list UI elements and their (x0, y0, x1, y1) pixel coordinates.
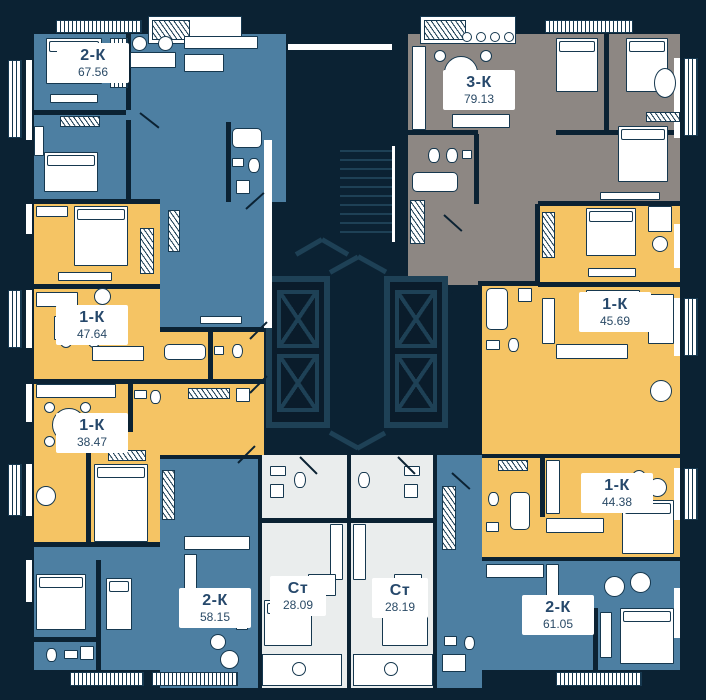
toilet (150, 390, 161, 404)
chair (80, 402, 91, 413)
bed (556, 38, 598, 92)
toilet (358, 472, 370, 488)
apartment-label-3k-7913[interactable]: 3-К 79.13 (443, 70, 515, 110)
stool (476, 32, 486, 42)
kitchen-counter (184, 36, 258, 49)
apartment-type: 2-К (202, 592, 228, 610)
wall (208, 330, 213, 382)
dresser (588, 268, 636, 277)
elevator-cab-icon (395, 354, 437, 412)
wall (535, 204, 540, 285)
stool (504, 32, 514, 42)
apartment-type: 2-К (80, 47, 106, 65)
apartment-label-2k-6105[interactable]: 2-К 61.05 (522, 595, 594, 635)
wall (226, 122, 231, 202)
lobby-wall (329, 255, 359, 275)
shaft-wall (264, 140, 272, 328)
toilet (248, 158, 260, 173)
wall (34, 110, 126, 115)
apartment-area: 79.13 (464, 92, 494, 106)
stair-tread (340, 150, 392, 152)
window (26, 560, 32, 602)
stool (490, 32, 500, 42)
dining-table (130, 52, 176, 68)
lobby-wall (356, 431, 386, 451)
chair (132, 36, 147, 51)
window (26, 464, 32, 516)
apartment-label-2k-5815[interactable]: 2-К 58.15 (179, 588, 251, 628)
sink (134, 390, 147, 399)
chair (220, 650, 239, 669)
desk (34, 126, 44, 156)
bathtub (486, 288, 508, 330)
balcony (684, 298, 698, 356)
kitchen-counter (353, 524, 366, 580)
wall (351, 518, 433, 523)
wall (482, 557, 680, 561)
wall (408, 130, 478, 135)
wall (86, 450, 91, 545)
window (674, 224, 680, 268)
kitchen-island (184, 54, 224, 72)
stair-tread (340, 213, 392, 215)
apartment-area: 28.09 (283, 598, 313, 612)
apartment-area: 67.56 (78, 65, 108, 79)
wall (482, 454, 680, 458)
balcony (545, 20, 633, 33)
wall (34, 284, 160, 289)
window (674, 588, 680, 638)
bathtub (232, 128, 262, 148)
wall (34, 199, 160, 204)
sofa (648, 294, 674, 344)
apartment-3k-7913-zone[interactable] (408, 204, 538, 285)
apartment-type: 1-К (604, 477, 630, 495)
apartment-type: Ст (288, 580, 308, 598)
apartment-area: 58.15 (200, 610, 230, 624)
apartment-label-2k-6756[interactable]: 2-К 67.56 (57, 43, 129, 83)
toilet (488, 492, 499, 506)
wardrobe (140, 228, 154, 274)
window (26, 204, 32, 234)
apartment-type: 2-К (545, 599, 571, 617)
bed (586, 208, 636, 256)
washing-machine (518, 288, 532, 302)
stairwell-window (288, 44, 392, 50)
wardrobe (60, 116, 100, 127)
chair (434, 50, 446, 62)
sink (486, 340, 500, 350)
window (26, 60, 32, 140)
toilet (46, 648, 57, 662)
apartment-label-1k-4438[interactable]: 1-К 44.38 (581, 473, 653, 513)
stair-tread (340, 204, 392, 206)
apartment-area: 45.69 (600, 314, 630, 328)
stair-door-wall (321, 237, 349, 256)
wall (128, 382, 133, 432)
chair (158, 36, 173, 51)
apartment-area: 28.19 (385, 600, 415, 614)
armchair (630, 572, 651, 593)
chair (210, 634, 226, 650)
wardrobe (442, 486, 456, 550)
apartment-label-st-2809[interactable]: Ст 28.09 (270, 576, 326, 616)
bathtub (510, 492, 530, 530)
bed (620, 608, 674, 664)
stair-tread (340, 231, 392, 233)
kitchen-counter (486, 564, 544, 578)
stair-tread (340, 177, 392, 179)
toilet (446, 148, 458, 163)
balcony (8, 60, 22, 138)
elevator-cab-icon (277, 354, 319, 412)
wall (34, 542, 160, 547)
sink (64, 650, 78, 659)
bed (44, 152, 98, 192)
bed (106, 578, 132, 630)
dresser (50, 94, 98, 103)
shower (80, 646, 94, 660)
bed (618, 126, 668, 182)
washing-machine (404, 484, 418, 498)
apartment-label-1k-3847[interactable]: 1-К 38.47 (56, 413, 128, 453)
toilet (428, 148, 440, 163)
stool (462, 32, 472, 42)
sink (270, 466, 286, 476)
stair-rail (392, 146, 395, 242)
wall (262, 518, 347, 523)
apartment-area: 61.05 (543, 617, 573, 631)
washing-machine (236, 180, 250, 194)
stair-tread (340, 195, 392, 197)
apartment-area: 47.64 (77, 327, 107, 341)
tv-stand (600, 192, 660, 200)
shower (442, 654, 466, 672)
apartment-area: 38.47 (77, 435, 107, 449)
wardrobe (542, 212, 555, 258)
balcony-table (384, 662, 398, 676)
chair (94, 288, 111, 305)
chair (44, 402, 55, 413)
apartment-type: 3-К (466, 74, 492, 92)
stair-tread (340, 168, 392, 170)
sink (444, 636, 457, 646)
bed (94, 464, 148, 542)
kitchen-counter (184, 536, 250, 550)
wardrobe (162, 470, 175, 520)
wall (96, 560, 101, 670)
bathtub (654, 68, 676, 98)
kitchen-counter (92, 346, 144, 361)
window (674, 58, 680, 138)
balcony (8, 464, 22, 516)
kitchen-counter (412, 46, 426, 130)
bathtub (164, 344, 206, 360)
balcony (152, 672, 238, 686)
toilet (294, 472, 306, 488)
window (26, 290, 32, 348)
door (451, 292, 470, 310)
floor-plan: 2-К 67.56 3-К 79.13 1-К 47.64 1-К 45.69 … (0, 0, 706, 700)
apartment-type: 1-К (79, 417, 105, 435)
wall (126, 120, 131, 202)
wardrobe (168, 210, 180, 252)
washing-machine (270, 484, 284, 498)
armchair (36, 486, 56, 506)
window (674, 468, 680, 520)
dresser (58, 272, 112, 281)
window (674, 298, 680, 356)
kitchen-counter (556, 344, 628, 359)
balcony (684, 468, 698, 520)
chair (44, 436, 55, 447)
sink (214, 346, 224, 355)
sink (232, 158, 244, 167)
sofa (600, 612, 612, 658)
apartment-label-1k-4764[interactable]: 1-К 47.64 (56, 305, 128, 345)
kitchen-counter (542, 298, 555, 344)
kitchen-counter (36, 384, 116, 398)
chair (480, 50, 492, 62)
armchair (604, 576, 625, 597)
lobby-wall (329, 430, 359, 450)
balcony (556, 672, 642, 686)
elevator-cab-icon (277, 290, 319, 348)
wardrobe (498, 460, 528, 471)
apartment-type: 1-К (79, 309, 105, 327)
radiator (646, 112, 680, 122)
toilet (232, 344, 243, 358)
cabinet (36, 206, 68, 217)
elevator-shaft (266, 276, 330, 428)
chair (652, 236, 668, 252)
kitchen-counter (546, 460, 560, 514)
kitchen-island (452, 114, 510, 128)
washing-machine (236, 388, 250, 402)
balcony (684, 58, 698, 136)
balcony-table (292, 662, 306, 676)
bench (200, 316, 242, 324)
sink (462, 150, 472, 159)
apartment-label-1k-4569[interactable]: 1-К 45.69 (579, 292, 651, 332)
kitchen-counter (546, 518, 604, 533)
apartment-type: Ст (390, 582, 410, 600)
toilet (508, 338, 519, 352)
stair-tread (340, 222, 392, 224)
wardrobe (410, 200, 425, 244)
wall (34, 637, 96, 642)
cabinet (648, 206, 672, 232)
apartment-area: 44.38 (602, 495, 632, 509)
stair-tread (340, 159, 392, 161)
lobby-wall (357, 254, 387, 274)
wall (478, 281, 538, 286)
wall (540, 457, 545, 517)
window (26, 384, 32, 422)
bed (74, 206, 128, 266)
stair-door-wall (295, 237, 323, 256)
balcony (70, 672, 144, 686)
balcony (56, 20, 142, 33)
elevator-cab-icon (395, 290, 437, 348)
stair-tread (340, 186, 392, 188)
toilet (464, 636, 475, 650)
elevator-shaft (384, 276, 448, 428)
bathtub (412, 172, 458, 192)
bed (36, 574, 86, 630)
apartment-type: 1-К (602, 296, 628, 314)
wall (604, 34, 609, 132)
armchair (650, 380, 672, 402)
balcony-hatch (424, 20, 466, 40)
kitchen-counter (330, 524, 343, 580)
balcony (8, 290, 22, 348)
sink (486, 522, 499, 532)
wall (474, 134, 479, 204)
apartment-label-st-2819[interactable]: Ст 28.19 (372, 578, 428, 618)
wall (538, 282, 680, 287)
wardrobe (188, 388, 230, 399)
